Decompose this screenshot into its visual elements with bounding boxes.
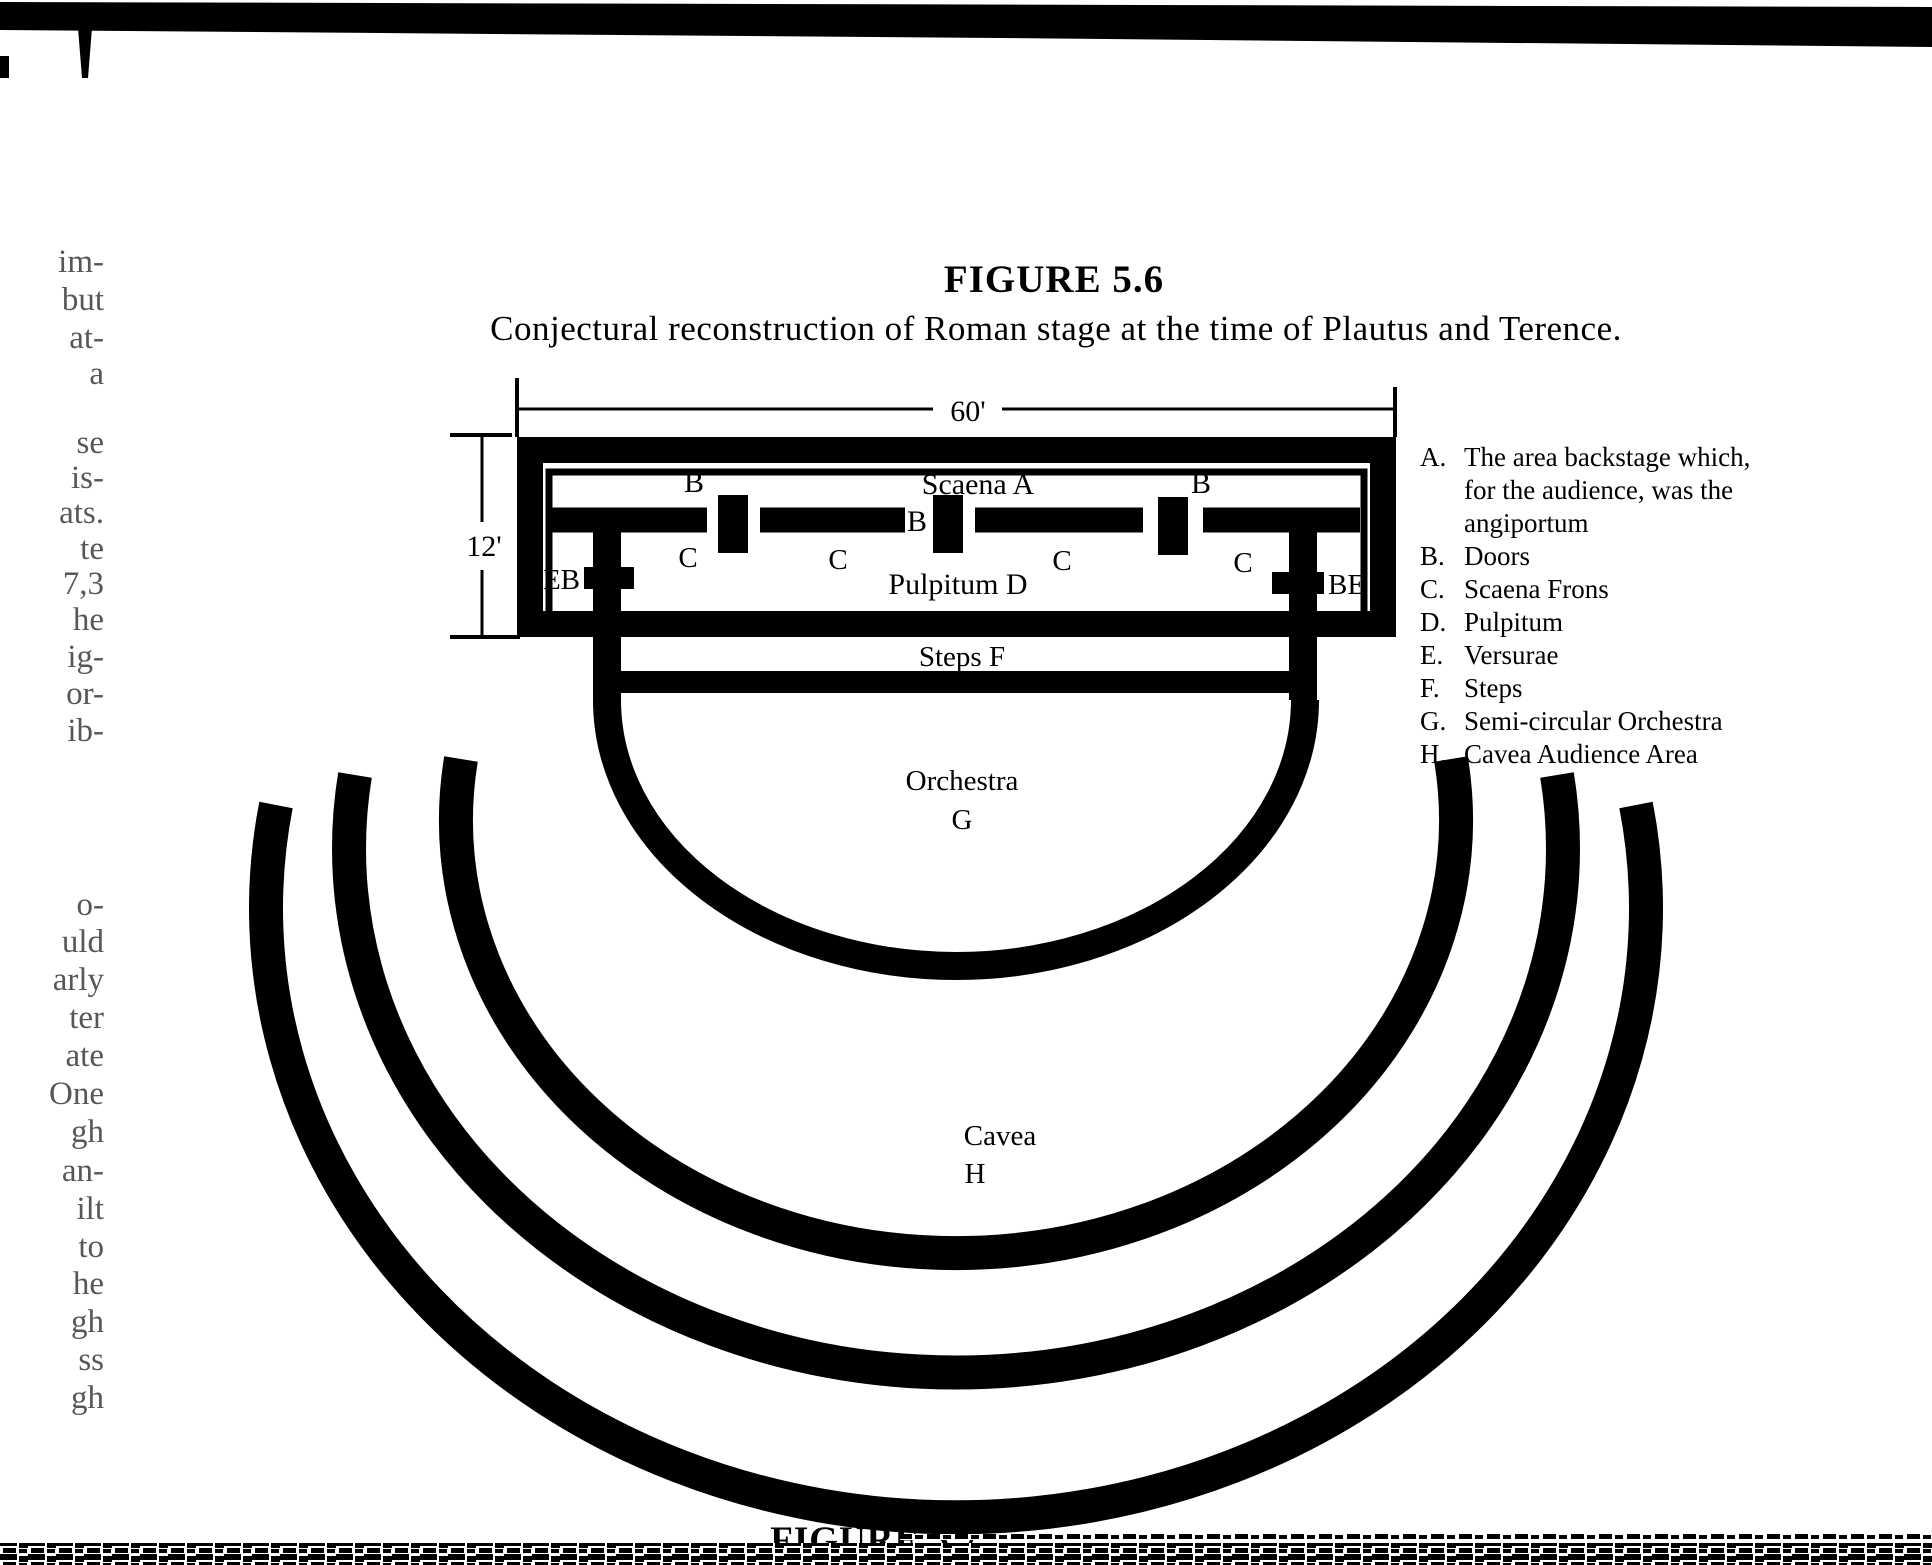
- margin-fragment: arly: [53, 962, 105, 998]
- margin-fragment: te: [80, 531, 104, 567]
- margin-fragment: he: [73, 1266, 104, 1302]
- legend-text: Doors: [1464, 541, 1530, 571]
- cavea-letter: H: [965, 1158, 986, 1190]
- steps-bar: [621, 671, 1289, 693]
- margin-fragment: an-: [62, 1153, 104, 1189]
- legend-letter: H.: [1420, 739, 1446, 769]
- legend: A. The area backstage which, for the aud…: [1420, 442, 1750, 769]
- scan-noise-strip-bottom: [0, 1543, 1932, 1565]
- margin-fragment: uld: [62, 924, 105, 960]
- versura-door-left: [584, 567, 634, 589]
- versura-right-label: BE: [1328, 569, 1365, 601]
- margin-fragment: to: [78, 1229, 104, 1265]
- scaena-frons-label-2: C: [828, 544, 847, 576]
- stage-door-right: [1158, 497, 1188, 555]
- scan-noise-strip-thin: [900, 1534, 1932, 1540]
- legend-letter: E.: [1420, 640, 1443, 670]
- legend-text: for the audience, was the: [1464, 475, 1733, 505]
- scan-band-top: [0, 2, 1932, 47]
- versura-door-right: [1272, 572, 1324, 594]
- legend-text: Pulpitum: [1464, 607, 1563, 637]
- margin-text-fragments: im- but at- a se is- ats. te 7,3 he ig- …: [49, 244, 104, 1416]
- orchestra-label: Orchestra: [906, 765, 1019, 797]
- margin-fragment: ig-: [67, 639, 104, 675]
- legend-letter: D.: [1420, 607, 1446, 637]
- door-right-label: B: [1191, 467, 1211, 500]
- legend-text: Semi-circular Orchestra: [1464, 706, 1723, 736]
- margin-fragment: 7,3: [63, 566, 104, 602]
- versura-right: [1289, 508, 1317, 700]
- versura-left-label: EB: [543, 564, 580, 596]
- door-left-label: B: [684, 466, 704, 499]
- scan-edge-mark: [0, 56, 9, 78]
- margin-fragment: but: [62, 282, 104, 318]
- figure-caption: Conjectural reconstruction of Roman stag…: [490, 309, 1622, 348]
- margin-fragment: One: [49, 1076, 104, 1112]
- legend-text: Versurae: [1464, 640, 1558, 670]
- margin-fragment: gh: [71, 1304, 105, 1340]
- margin-fragment: gh: [71, 1380, 105, 1416]
- margin-fragment: he: [73, 602, 104, 638]
- pulpitum-label: Pulpitum D: [888, 568, 1027, 601]
- stage-width-label: 60': [950, 395, 985, 428]
- stage-depth-label: 12': [466, 530, 501, 563]
- margin-fragment: im-: [58, 244, 104, 280]
- margin-fragment: ib-: [67, 713, 104, 749]
- legend-text: Steps: [1464, 673, 1523, 703]
- margin-fragment: o-: [77, 887, 105, 923]
- legend-letter: A.: [1420, 442, 1446, 472]
- scaena-label: Scaena A: [922, 468, 1035, 501]
- door-center-label: B: [907, 505, 927, 538]
- margin-fragment: ss: [78, 1342, 104, 1378]
- steps-label: Steps F: [919, 641, 1005, 673]
- cavea-label: Cavea: [964, 1120, 1037, 1152]
- margin-fragment: is-: [71, 460, 104, 496]
- margin-fragment: a: [89, 356, 104, 392]
- margin-fragment: at-: [69, 320, 104, 356]
- scaena-frons-label-1: C: [678, 542, 697, 574]
- stage-door-center: [933, 495, 963, 553]
- legend-letter: G.: [1420, 706, 1446, 736]
- legend-letter: B.: [1420, 541, 1445, 571]
- scaena-frons-label-4: C: [1233, 547, 1252, 579]
- margin-fragment: gh: [71, 1114, 105, 1150]
- scanned-book-page: im- but at- a se is- ats. te 7,3 he ig- …: [0, 0, 1932, 1565]
- orchestra-letter: G: [952, 804, 973, 836]
- figure-5-6-diagram: im- but at- a se is- ats. te 7,3 he ig- …: [0, 0, 1932, 1565]
- versura-left: [593, 508, 621, 700]
- margin-fragment: ilt: [76, 1191, 104, 1227]
- legend-text: angiportum: [1464, 508, 1588, 538]
- stage-door-left: [718, 495, 748, 553]
- legend-text: Scaena Frons: [1464, 574, 1609, 604]
- legend-letter: F.: [1420, 673, 1440, 703]
- margin-fragment: se: [77, 425, 105, 461]
- scan-ink-drip: [78, 28, 92, 78]
- margin-fragment: or-: [66, 676, 104, 712]
- margin-fragment: ate: [66, 1038, 104, 1074]
- legend-letter: C.: [1420, 574, 1445, 604]
- legend-text: Cavea Audience Area: [1464, 739, 1698, 769]
- figure-title: FIGURE 5.6: [944, 258, 1164, 301]
- margin-fragment: ats.: [59, 495, 104, 531]
- margin-fragment: ter: [69, 1000, 104, 1036]
- legend-text: The area backstage which,: [1464, 442, 1750, 472]
- scaena-frons-label-3: C: [1052, 545, 1071, 577]
